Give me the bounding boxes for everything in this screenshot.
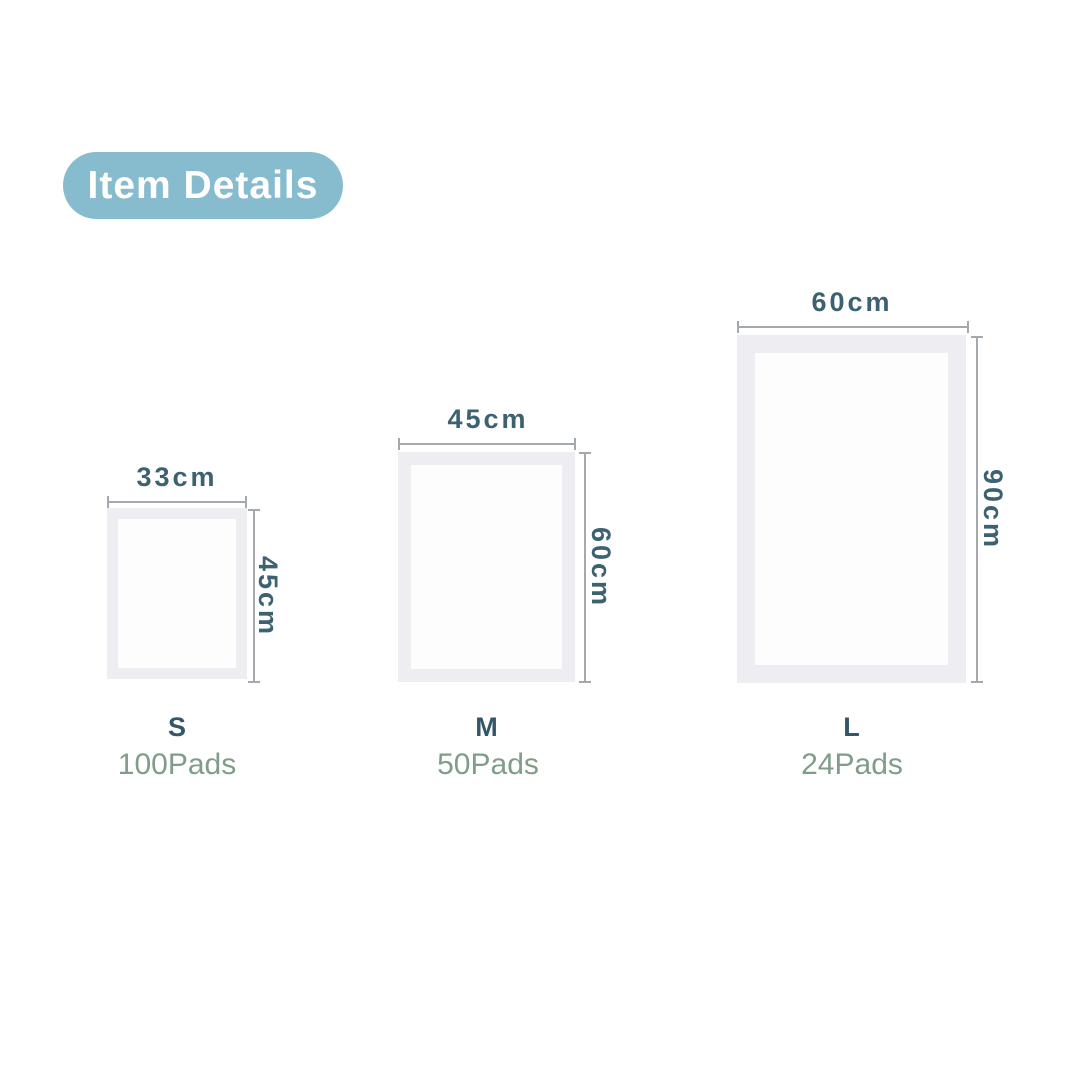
pad-inner-area-m [411,465,562,669]
pad-inner-area-s [118,519,236,668]
size-label-l: L [737,712,966,743]
height-dimension-label-s: 45cm [250,509,286,683]
width-dimension-line-m [398,438,576,450]
width-dimension-label-l: 60cm [707,287,997,318]
pad-count-label-m: 50Pads [348,748,628,782]
pad-count-label-s: 100Pads [57,748,297,782]
height-dimension-label-l: 90cm [975,336,1011,683]
size-label-s: S [107,712,247,743]
pad-illustration-s [107,508,247,679]
width-dimension-label-m: 45cm [368,404,608,435]
pad-inner-area-l [755,353,948,665]
item-details-badge-label: Item Details [88,164,319,208]
size-label-m: M [398,712,575,743]
pad-illustration-l [737,335,966,683]
pad-count-label-l: 24Pads [687,748,1017,782]
pad-illustration-m [398,452,575,682]
item-details-badge: Item Details [63,152,343,219]
width-dimension-line-s [107,496,247,508]
height-dimension-label-m: 60cm [583,452,619,683]
width-dimension-line-l [737,321,969,333]
width-dimension-label-s: 33cm [77,462,277,493]
